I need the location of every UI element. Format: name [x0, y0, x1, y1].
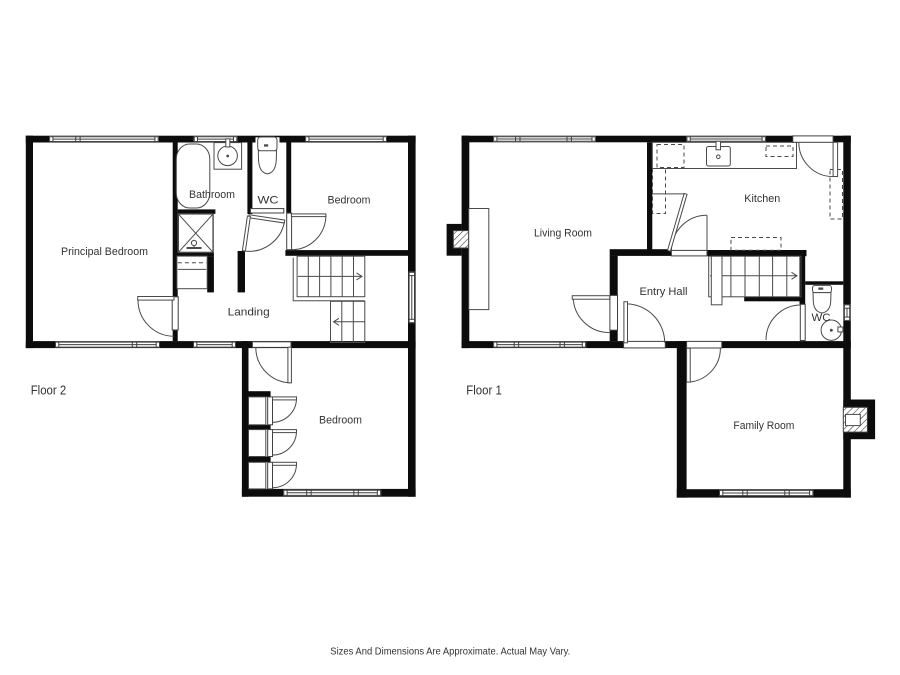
svg-text:Principal Bedroom: Principal Bedroom — [61, 246, 148, 258]
svg-text:WC: WC — [258, 195, 279, 207]
svg-text:WC: WC — [812, 312, 831, 324]
svg-text:Family Room: Family Room — [733, 420, 794, 432]
svg-text:Bedroom: Bedroom — [319, 415, 362, 427]
svg-text:Landing: Landing — [228, 307, 270, 319]
svg-text:Living Room: Living Room — [534, 227, 592, 239]
svg-text:Sizes And Dimensions Are Appro: Sizes And Dimensions Are Approximate. Ac… — [330, 646, 570, 657]
svg-text:Floor 2: Floor 2 — [31, 383, 66, 398]
svg-text:Floor 1: Floor 1 — [466, 383, 502, 398]
svg-text:Bedroom: Bedroom — [328, 195, 371, 207]
svg-text:Kitchen: Kitchen — [744, 193, 780, 205]
svg-text:Entry Hall: Entry Hall — [640, 286, 688, 298]
svg-text:Bathroom: Bathroom — [189, 189, 235, 201]
